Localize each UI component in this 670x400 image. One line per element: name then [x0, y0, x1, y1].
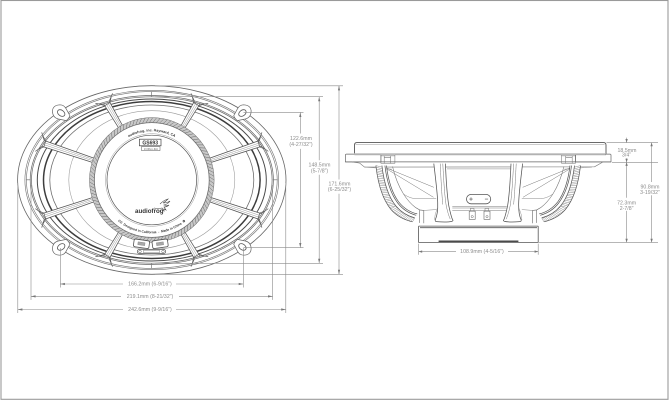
svg-text:(6-25/32”): (6-25/32”) [328, 187, 351, 193]
svg-text:3 Ohm 4Ω: 3 Ohm 4Ω [144, 147, 159, 151]
svg-text:166.2mm (6-9/16”): 166.2mm (6-9/16”) [128, 282, 172, 288]
svg-text:2-7/8”: 2-7/8” [620, 206, 634, 212]
svg-text:3-19/32”: 3-19/32” [640, 190, 660, 196]
svg-text:108.9mm (4-5/16”): 108.9mm (4-5/16”) [460, 249, 504, 255]
svg-text:GS693: GS693 [142, 141, 158, 147]
svg-text:(5-7/8”): (5-7/8”) [311, 168, 329, 174]
svg-text:(4-27/32”): (4-27/32”) [289, 142, 312, 148]
svg-text:3/4”: 3/4” [622, 153, 631, 159]
svg-text:242.6mm (9-9/16”): 242.6mm (9-9/16”) [128, 307, 172, 313]
svg-text:audiofrog: audiofrog [135, 208, 164, 215]
svg-text:219.1mm (8-21/32”): 219.1mm (8-21/32”) [127, 294, 174, 300]
